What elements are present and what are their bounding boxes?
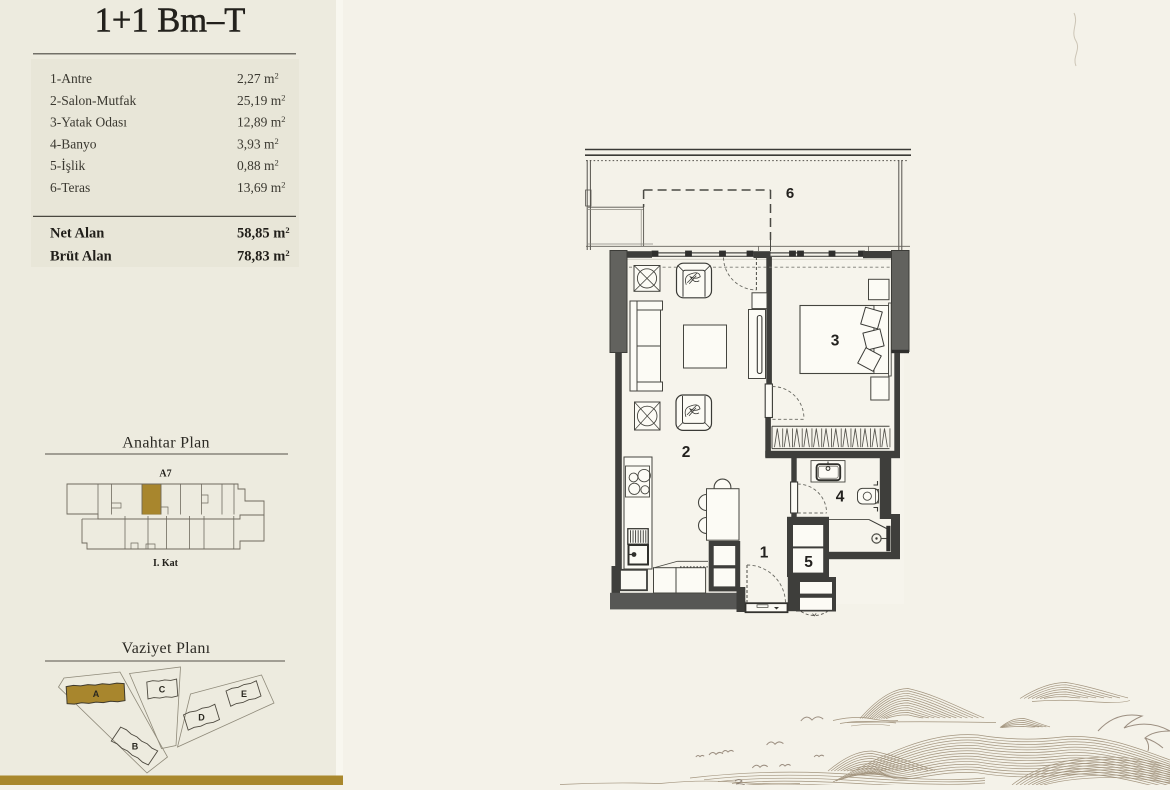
svg-text:C: C [159,685,166,695]
svg-text:E: E [241,689,247,699]
svg-text:25,19 m2: 25,19 m2 [237,92,286,108]
svg-text:Anahtar Plan: Anahtar Plan [122,435,210,452]
svg-text:2-Salon-Mutfak: 2-Salon-Mutfak [50,93,136,108]
svg-text:12,89 m2: 12,89 m2 [237,114,286,130]
svg-text:58,85 m2: 58,85 m2 [237,225,290,242]
svg-text:1+1 Bm–T: 1+1 Bm–T [95,2,246,40]
svg-text:6-Teras: 6-Teras [50,180,90,195]
svg-text:4: 4 [836,489,845,506]
svg-text:78,83 m2: 78,83 m2 [237,248,290,265]
svg-text:4-Banyo: 4-Banyo [50,136,97,151]
svg-text:I. Kat: I. Kat [153,558,179,569]
svg-text:Net Alan: Net Alan [50,226,104,242]
svg-text:3,93 m2: 3,93 m2 [237,136,279,152]
svg-text:D: D [198,713,205,723]
svg-text:13,69 m2: 13,69 m2 [237,180,286,196]
svg-text:3: 3 [831,333,840,350]
svg-text:A: A [93,689,100,699]
svg-text:2: 2 [682,444,691,461]
svg-text:B: B [132,742,139,752]
svg-text:A7: A7 [159,469,171,480]
svg-text:2,27 m2: 2,27 m2 [237,71,279,87]
svg-text:0,88 m2: 0,88 m2 [237,158,279,174]
svg-text:5: 5 [804,554,813,571]
svg-text:1-Antre: 1-Antre [50,71,92,86]
svg-text:1: 1 [760,545,769,562]
svg-text:Vaziyet Planı: Vaziyet Planı [122,640,211,657]
svg-text:6: 6 [786,185,794,202]
svg-text:Brüt Alan: Brüt Alan [50,249,112,265]
svg-text:3-Yatak Odası: 3-Yatak Odası [50,115,127,130]
svg-text:5-İşlik: 5-İşlik [50,158,85,173]
